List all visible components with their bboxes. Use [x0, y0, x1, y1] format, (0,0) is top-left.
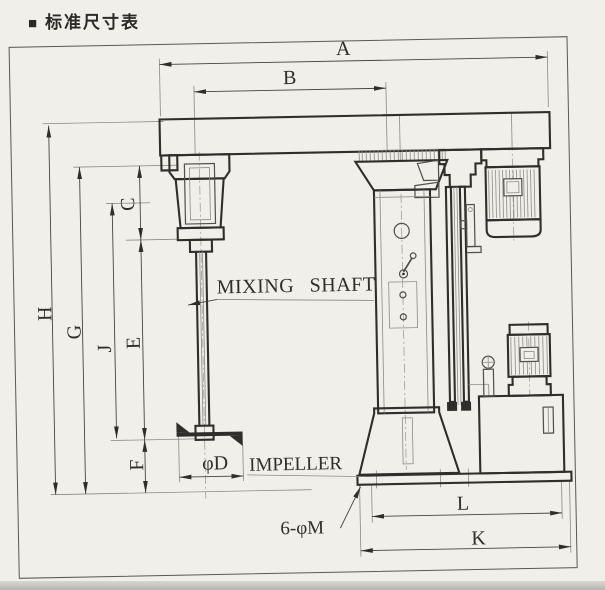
hydraulic-unit	[478, 324, 565, 474]
drive-motor	[481, 148, 545, 237]
bolt-leader	[340, 487, 362, 528]
guide-rods	[439, 149, 489, 411]
dim-label-l: L	[457, 493, 470, 515]
mixing-shaft-leader	[188, 299, 217, 305]
leader-lines	[188, 296, 378, 531]
bolt-spec-label: 6-φM	[280, 517, 324, 539]
impeller-disc	[176, 421, 242, 447]
lever-knob	[410, 253, 416, 259]
dim-label-d: φD	[202, 452, 228, 474]
limit-bracket	[466, 205, 475, 247]
centerlines	[199, 142, 532, 499]
dim-label-b: B	[283, 67, 297, 89]
dim-label-k: K	[471, 527, 486, 549]
dim-label-a: A	[336, 38, 351, 60]
column-head	[355, 149, 448, 199]
mixing-shaft-label: MIXING SHAFT	[217, 273, 376, 298]
scanned-page: ■标准尺寸表	[0, 0, 605, 590]
dim-line-k	[361, 547, 571, 551]
dim-label-c: C	[117, 197, 139, 211]
terminal-box	[504, 179, 522, 196]
dim-label-e: E	[123, 337, 145, 350]
dim-line-a	[159, 57, 547, 64]
scan-edge-shadow	[0, 581, 605, 590]
extension-lines	[41, 51, 571, 563]
dim-label-f: F	[126, 459, 148, 471]
dim-line-d	[179, 476, 243, 477]
pedestal	[358, 407, 459, 475]
dimension-diagram: A B H G J E C F φD L K 6-φM MIXING SHAFT…	[0, 0, 605, 590]
dim-label-h: H	[34, 306, 56, 321]
dim-line-j	[112, 203, 117, 438]
dim-label-j: J	[94, 344, 116, 352]
clamp-wedge-upper	[417, 160, 438, 180]
impeller-label: IMPELLER	[249, 453, 343, 476]
dim-label-g: G	[63, 325, 85, 340]
lifting-column	[374, 189, 434, 413]
